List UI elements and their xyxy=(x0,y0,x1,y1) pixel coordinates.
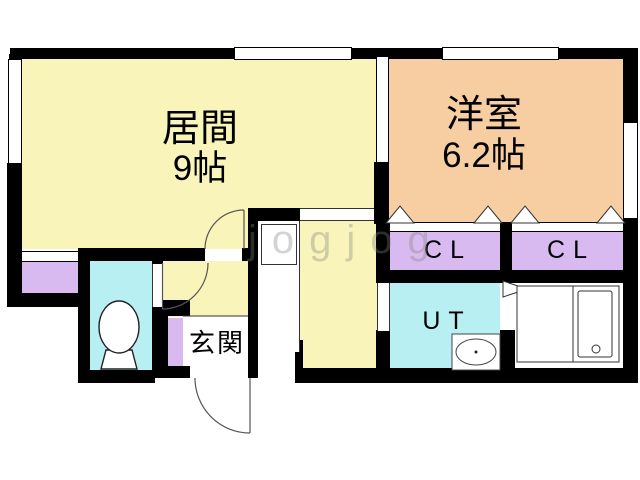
utility-label: UT xyxy=(401,308,493,334)
closet-right-label: CL xyxy=(525,237,617,263)
wall xyxy=(374,162,389,224)
window xyxy=(234,47,352,60)
floor-plan: 居間 9帖 洋室 6.2帖 CL CL UT 玄関 jogjog xyxy=(0,0,640,480)
wall xyxy=(152,250,163,264)
sliding-partition xyxy=(376,56,389,163)
wall xyxy=(295,368,638,383)
living-size-label: 9帖 xyxy=(130,151,270,188)
window xyxy=(442,47,559,60)
wall xyxy=(78,370,155,383)
bathroom-floor xyxy=(515,283,623,369)
wall xyxy=(376,270,623,283)
wall xyxy=(78,248,205,261)
utility-door-opening xyxy=(377,283,390,331)
window xyxy=(623,122,638,219)
wall xyxy=(152,366,190,378)
wall xyxy=(500,330,515,370)
western-room-label: 洋室 xyxy=(414,96,554,136)
closet-bl-door-track xyxy=(22,251,78,262)
closet-bottom-left xyxy=(22,261,78,293)
toilet-door-opening xyxy=(152,264,163,307)
living-room-label: 居間 xyxy=(130,110,270,150)
window xyxy=(8,59,22,164)
wall xyxy=(78,250,90,383)
wall xyxy=(7,163,22,307)
wall xyxy=(623,48,638,123)
wall xyxy=(623,218,638,383)
door-arc-entrance xyxy=(195,378,250,433)
wall xyxy=(10,48,235,59)
wall xyxy=(376,330,390,370)
entrance-label: 玄関 xyxy=(186,330,248,357)
wall xyxy=(352,48,443,59)
shoe-box xyxy=(168,318,183,366)
western-size-label: 6.2帖 xyxy=(404,138,564,175)
watermark-text: jogjog xyxy=(248,218,445,263)
toilet-room-floor xyxy=(90,261,152,371)
